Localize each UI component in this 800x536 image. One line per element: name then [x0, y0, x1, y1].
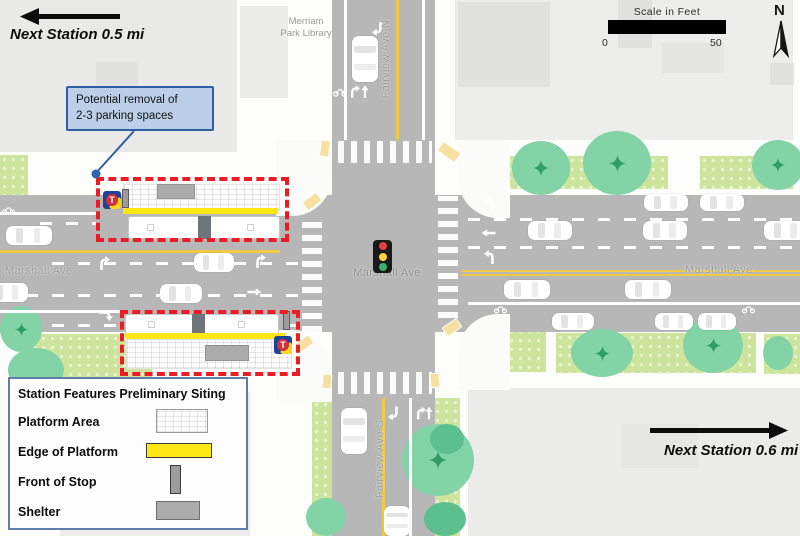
station-siting-map: Fairview Ave N Marshall Ave Marshall Ave… [0, 0, 800, 536]
legend-swatch-platform-area [156, 409, 208, 433]
callout-leader-line [85, 124, 145, 182]
tree [763, 336, 793, 370]
bench [321, 374, 332, 390]
lane-dash [468, 246, 800, 249]
lane-dash [40, 222, 96, 225]
scale-min-label: 0 [602, 37, 608, 49]
tree [424, 502, 466, 536]
legend-label-shelter: Shelter [18, 505, 60, 519]
car [384, 506, 410, 536]
car [6, 226, 52, 245]
next-station-right-label: Next Station 0.6 mi [664, 442, 798, 459]
car [655, 313, 693, 330]
bush [430, 424, 464, 454]
car [643, 221, 687, 240]
bike-marking-icon [2, 206, 15, 215]
tree [752, 140, 800, 190]
turn-arrow-icon [254, 254, 266, 268]
crosswalk-south [338, 372, 432, 394]
turn-arrow-icon [98, 256, 110, 270]
tree [306, 498, 346, 536]
bike-marking-icon [494, 305, 507, 314]
signal-red-light [379, 242, 387, 250]
lane-line [422, 0, 425, 140]
crosswalk-west [302, 216, 322, 332]
street-label-fairview-s: Fairview Ave S [374, 404, 386, 514]
signal-yellow-light [379, 253, 387, 261]
callout-text-line2: 2-3 parking spaces [76, 109, 204, 125]
legend-swatch-edge-of-platform [146, 443, 212, 458]
scale-max-label: 50 [710, 37, 722, 49]
parking-removal-callout: Potential removal of 2-3 parking spaces [66, 86, 214, 131]
turn-arrow-icon [484, 196, 496, 210]
legend-label-platform-area: Platform Area [18, 415, 100, 429]
car [700, 194, 744, 211]
legend-label-edge-of-platform: Edge of Platform [18, 445, 118, 459]
turn-arrow-icon [388, 406, 400, 421]
right-arrow-icon [650, 422, 788, 439]
tree [512, 141, 570, 195]
car [194, 253, 234, 272]
lane-dash [468, 218, 800, 221]
signal-green-light [379, 263, 387, 271]
bike-marking-icon [333, 88, 347, 97]
traffic-signal-icon [373, 240, 392, 273]
straight-arrow-icon [361, 85, 369, 98]
legend-title: Station Features Preliminary Siting [18, 387, 226, 401]
car [352, 36, 378, 82]
bush [0, 306, 42, 352]
legend-label-front-of-stop: Front of Stop [18, 475, 96, 489]
scale-bar-title: Scale in Feet [608, 6, 726, 18]
legend-swatch-shelter [156, 501, 200, 520]
north-label: N [774, 2, 785, 19]
car [764, 221, 800, 240]
crosswalk-east [438, 196, 458, 318]
turn-arrow-icon [484, 250, 496, 264]
legend-box: Station Features Preliminary Siting Plat… [8, 377, 248, 530]
straight-arrow-icon [482, 229, 496, 238]
library-label: Merriam Park Library [278, 16, 334, 40]
callout-text-line1: Potential removal of [76, 93, 204, 109]
car [504, 280, 550, 299]
street-label-fairview-n: Fairview Ave N [380, 4, 392, 114]
building-block-ne-d [770, 63, 794, 85]
car [552, 313, 594, 330]
legend-swatch-front-of-stop [170, 465, 181, 494]
car [644, 194, 688, 211]
bench [429, 373, 440, 389]
scale-bar [608, 20, 726, 34]
boulevard-strip [0, 155, 28, 197]
straight-arrow-icon [248, 288, 262, 297]
station-outline-north [96, 177, 289, 242]
tree [583, 131, 651, 195]
car [160, 284, 202, 303]
car [528, 221, 572, 240]
car [341, 408, 367, 454]
center-line [0, 250, 280, 253]
tree [571, 329, 633, 377]
center-line [396, 0, 399, 140]
car [0, 283, 28, 302]
next-station-left-label: Next Station 0.5 mi [10, 26, 144, 43]
street-label-marshall-w: Marshall Ave [5, 265, 73, 277]
turn-arrow-icon [349, 85, 360, 98]
turn-arrow-icon [99, 309, 113, 321]
crosswalk-north [338, 141, 432, 163]
station-outline-south [120, 310, 300, 376]
building-block-ne-a [458, 2, 550, 87]
north-arrow-icon [771, 20, 791, 60]
lane-line [344, 0, 347, 140]
car [625, 280, 671, 299]
left-arrow-icon [20, 8, 120, 25]
bike-marking-icon [742, 305, 755, 314]
car [698, 313, 736, 330]
straight-arrow-icon [425, 406, 433, 420]
street-label-marshall-e: Marshall Ave [685, 264, 753, 276]
